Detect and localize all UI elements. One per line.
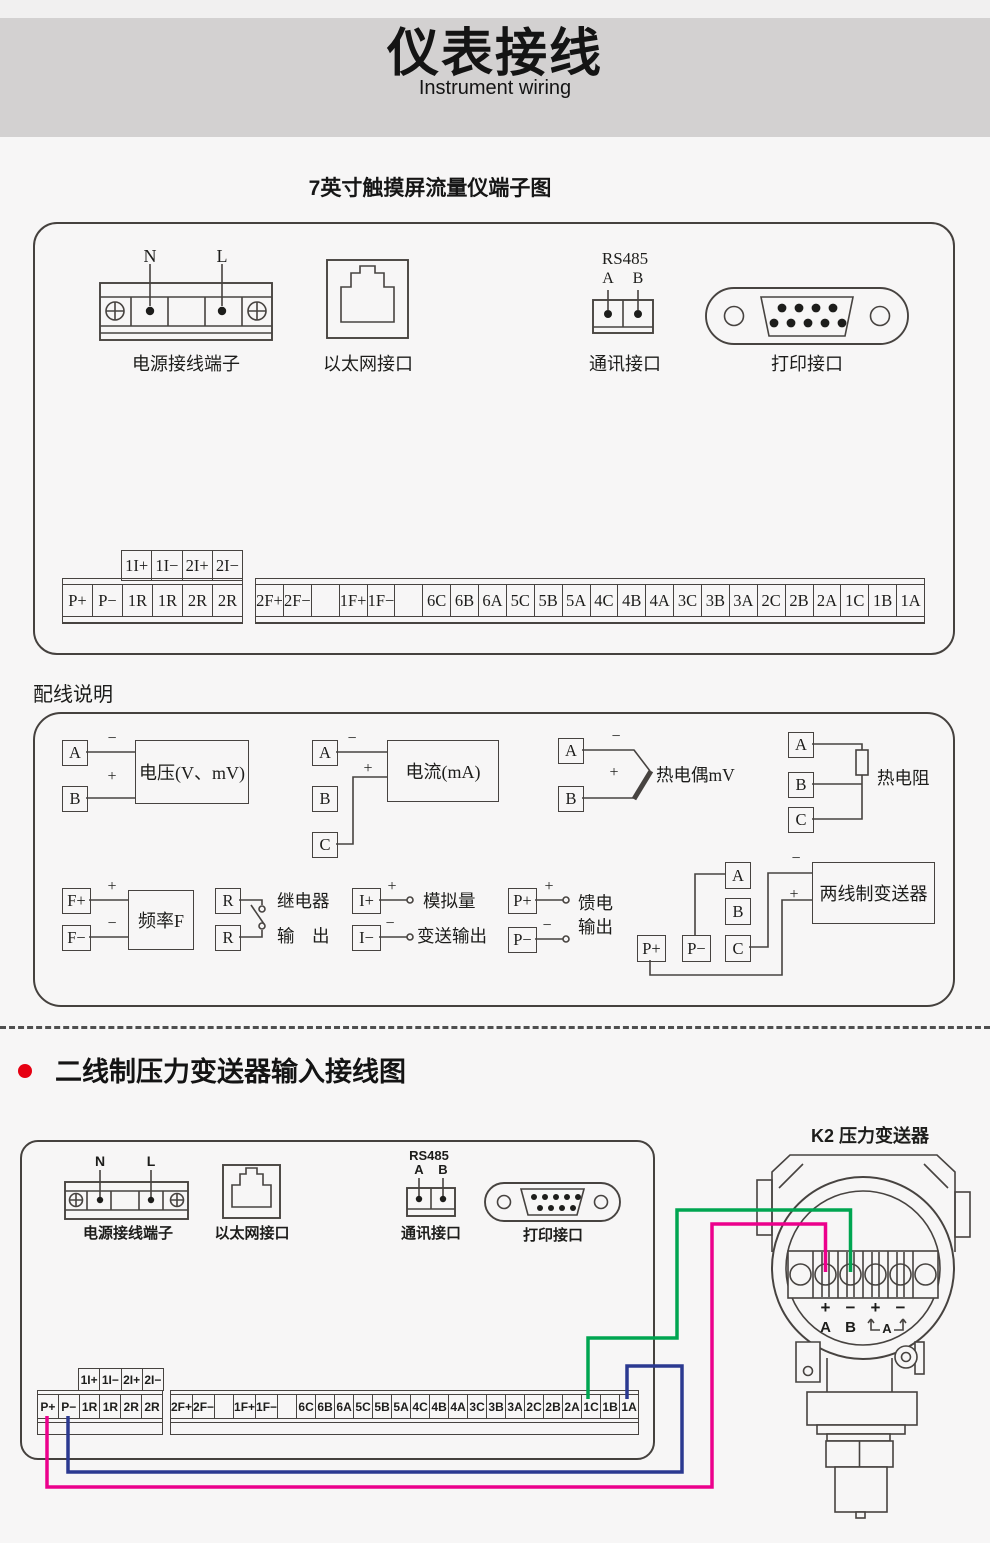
terminal-cell: 5A [563,585,591,616]
feed-label-line1: 馈电 [578,890,613,915]
diagram1-title: 7英寸触摸屏流量仪端子图 [0,172,860,202]
frequency-box: 频率F [128,890,194,950]
terminal-cell: 1B [601,1395,620,1418]
voltage-term-b: B [62,786,88,812]
strip-rail [171,1423,638,1434]
feed-minus-sign: − [542,917,551,935]
aux-terminal-strip: 1I+1I−2I+2I− [121,550,243,581]
analog-label-line2: 变送输出 [417,923,487,948]
current-term-a: A [312,740,338,766]
analog-term-iminus: I− [352,925,381,951]
terminal-cell: 2R [183,585,213,616]
printer2-port-label: 打印接口 [523,1224,583,1245]
terminal-cell: 6B [316,1395,335,1418]
terminal-cell: 4B [430,1395,449,1418]
terminal-cell: 1A [620,1395,638,1418]
rs485-2-b-label: B [438,1162,447,1177]
terminal-cell: 2I+ [122,1369,143,1390]
current-term-b: B [312,786,338,812]
comm-port-label: 通讯接口 [589,350,661,376]
voltage-box: 电压(V、mV) [135,740,249,804]
transmitter-sign-plus2: + [871,1298,881,1317]
terminal-cell: 1A [897,585,924,616]
terminal-cell: 6C [423,585,451,616]
right-terminal-cells: 2F+2F−1F+1F−6C6B6A5C5B5A4C4B4A3C3B3A2C2B… [256,585,924,617]
voltage-plus-sign: + [107,768,116,786]
terminal-cell [215,1395,234,1418]
terminal-cell: 2C [525,1395,544,1418]
current-minus-sign: − [347,730,356,748]
terminal-cell: 2I− [213,551,242,580]
terminal-cell: 1F+ [340,585,368,616]
thermocouple-label: 热电偶mV [656,762,735,787]
right-terminal-cells-2: 2F+2F−1F+1F−6C6B6A5C5B5A4C4B4A3C3B3A2C2B… [171,1395,638,1419]
rs485-2-label: RS485 [409,1148,449,1163]
terminal-cell: 3B [487,1395,506,1418]
terminal-cell: 1R [153,585,183,616]
terminal-cell: 1R [100,1395,121,1418]
terminal-cell: 1C [841,585,869,616]
strip-rail [38,1423,162,1434]
twowire-term-pminus: P− [682,935,711,962]
terminal-cell [278,1395,297,1418]
terminal-cell: P+ [38,1395,59,1418]
terminal-cell: 4A [646,585,674,616]
feed-term-pminus: P− [508,927,537,953]
thermocouple-term-b: B [558,786,584,812]
terminal-cell: 3B [702,585,730,616]
twowire-box: 两线制变送器 [812,862,935,924]
power2-n-label: N [95,1153,105,1169]
frequency-term-fminus: F− [62,925,91,951]
current-plus-sign: + [363,760,372,778]
terminal-cell: 1F− [368,585,396,616]
pressure-transmitter-graphic: + − + − A B A [757,1155,970,1518]
relay-term-r1: R [215,888,241,914]
terminal-cell [395,585,423,616]
rs485-a-label: A [602,270,614,288]
terminal-cell: 3A [730,585,758,616]
voltage-term-a: A [62,740,88,766]
relay-term-r2: R [215,925,241,951]
terminal-cell: 2I− [143,1369,163,1390]
terminal-cell: 2F+ [256,585,284,616]
current-box: 电流(mA) [387,740,499,802]
terminal-cell: 4C [591,585,619,616]
terminal-cell: 4B [618,585,646,616]
relay-label-line1: 继电器 [277,888,330,913]
terminal-cell: 5A [392,1395,411,1418]
feed-term-pplus: P+ [508,888,537,914]
terminal-cell: 3C [468,1395,487,1418]
feed-plus-sign: + [544,878,553,896]
analog-plus-sign: + [387,878,396,896]
aux-terminal-cells: 1I+1I−2I+2I− [122,551,242,580]
twowire-term-b: B [725,898,751,925]
terminal-cell: P− [59,1395,80,1418]
left-terminal-strip: P+P−1R1R2R2R [62,578,243,624]
terminal-cell: 5C [354,1395,373,1418]
terminal-cell: 2F− [284,585,312,616]
terminal-cell: 1R [80,1395,101,1418]
terminal-cell: 2R [213,585,242,616]
header-top-strip [0,0,990,18]
frequency-plus-sign: + [107,878,116,896]
rtd-label: 热电阻 [877,765,930,790]
rs485-b-label: B [633,270,644,288]
rs485-label: RS485 [602,249,648,269]
section-bullet [18,1064,32,1078]
twowire-term-pplus: P+ [637,935,666,962]
terminal-cell: 1I+ [79,1369,100,1390]
current-term-c: C [312,832,338,858]
aux-terminal-strip-2: 1I+1I−2I+2I− [78,1368,164,1391]
terminal-cell: 3C [674,585,702,616]
aux-terminal-cells-2: 1I+1I−2I+2I− [79,1369,163,1390]
right-terminal-strip-2: 2F+2F−1F+1F−6C6B6A5C5B5A4C4B4A3C3B3A2C2B… [170,1390,639,1435]
thermocouple-minus-sign: − [611,728,620,746]
left-terminal-strip-2: P+P−1R1R2R2R [37,1390,163,1435]
strip-band [256,617,924,623]
transmitter-sign-minus2: − [896,1298,906,1317]
terminal-cell: 2I+ [183,551,213,580]
right-terminal-strip: 2F+2F−1F+1F−6C6B6A5C5B5A4C4B4A3C3B3A2C2B… [255,578,925,624]
terminal-cell: 1R [123,585,153,616]
transmitter-loop-a: A [882,1321,892,1336]
feed-label-line2: 输出 [578,914,613,939]
terminal-cell: 6A [479,585,507,616]
comm2-port-label: 通讯接口 [401,1222,461,1243]
terminal-cell: 5B [535,585,563,616]
left-terminal-cells: P+P−1R1R2R2R [63,585,242,617]
power2-l-label: L [147,1153,156,1169]
transmitter-loop-bracket [868,1319,906,1330]
terminal-cell: 4A [449,1395,468,1418]
power-terminal-label: 电源接线端子 [132,350,240,376]
rtd-term-c: C [788,807,814,833]
wiring-notes-heading: 配线说明 [33,678,113,707]
terminal-cell: 2R [121,1395,142,1418]
k2-transmitter-label: K2 压力变送器 [811,1122,929,1148]
rtd-term-a: A [788,732,814,758]
page-subtitle: Instrument wiring [0,78,990,98]
section-divider [0,1026,990,1029]
voltage-minus-sign: − [107,730,116,748]
terminal-cell: 1F− [256,1395,278,1418]
terminal-cell: 1F+ [234,1395,256,1418]
manual-page: 仪表接线 Instrument wiring 7英寸触摸屏流量仪端子图 N L … [0,0,990,1543]
strip-band [63,617,242,623]
page-title: 仪表接线 [0,26,990,82]
left-terminal-cells-2: P+P−1R1R2R2R [38,1395,162,1419]
terminal-cell: 6A [335,1395,354,1418]
ethernet2-label: 以太网接口 [214,1222,289,1243]
terminal-cell: 1I− [100,1369,121,1390]
terminal-cell: 2B [544,1395,563,1418]
terminal-cell: P+ [63,585,93,616]
terminal-cell: 1C [582,1395,601,1418]
rs485-2-a-label: A [414,1162,423,1177]
terminal-cell: 2F+ [171,1395,193,1418]
analog-minus-sign: − [385,915,394,933]
relay-label-line2: 输 出 [277,923,330,948]
transmitter-sign-plus1: + [821,1298,831,1317]
power2-terminal-label: 电源接线端子 [83,1222,173,1243]
transmitter-sign-minus1: − [846,1298,856,1317]
twowire-minus-sign: − [791,850,800,868]
terminal-cell: 1B [869,585,897,616]
frequency-term-fplus: F+ [62,888,91,914]
thermocouple-plus-sign: + [609,764,618,782]
terminal-cell: 2A [563,1395,582,1418]
terminal-cell: 6B [451,585,479,616]
terminal-cell: 2R [142,1395,162,1418]
transmitter-term-b: B [845,1319,856,1336]
twowire-term-c: C [725,935,751,962]
thermocouple-term-a: A [558,738,584,764]
terminal-cell: 2F− [193,1395,215,1418]
terminal-cell: 3A [506,1395,525,1418]
power-l-label: L [217,246,228,267]
terminal-cell: 1I− [152,551,182,580]
ethernet-label: 以太网接口 [323,350,413,376]
terminal-cell [312,585,340,616]
power-n-label: N [144,246,157,267]
transmitter-term-a: A [820,1319,831,1336]
analog-term-iplus: I+ [352,888,381,914]
terminal-cell: 2A [814,585,842,616]
terminal-cell: 1I+ [122,551,152,580]
terminal-cell: 5C [507,585,535,616]
rtd-term-b: B [788,772,814,798]
header-band: 仪表接线 Instrument wiring [0,18,990,137]
diagram2-title: 二线制压力变送器输入接线图 [55,1050,406,1089]
terminal-cell: 5B [373,1395,392,1418]
twowire-term-a: A [725,862,751,889]
twowire-plus-sign: + [789,886,798,904]
analog-label-line1: 模拟量 [423,888,476,913]
terminal-cell: 6C [297,1395,316,1418]
terminal-cell: P− [93,585,123,616]
terminal-cell: 4C [411,1395,430,1418]
frequency-minus-sign: − [107,915,116,933]
terminal-cell: 2C [758,585,786,616]
printer-port-label: 打印接口 [771,350,843,376]
terminal-cell: 2B [786,585,814,616]
